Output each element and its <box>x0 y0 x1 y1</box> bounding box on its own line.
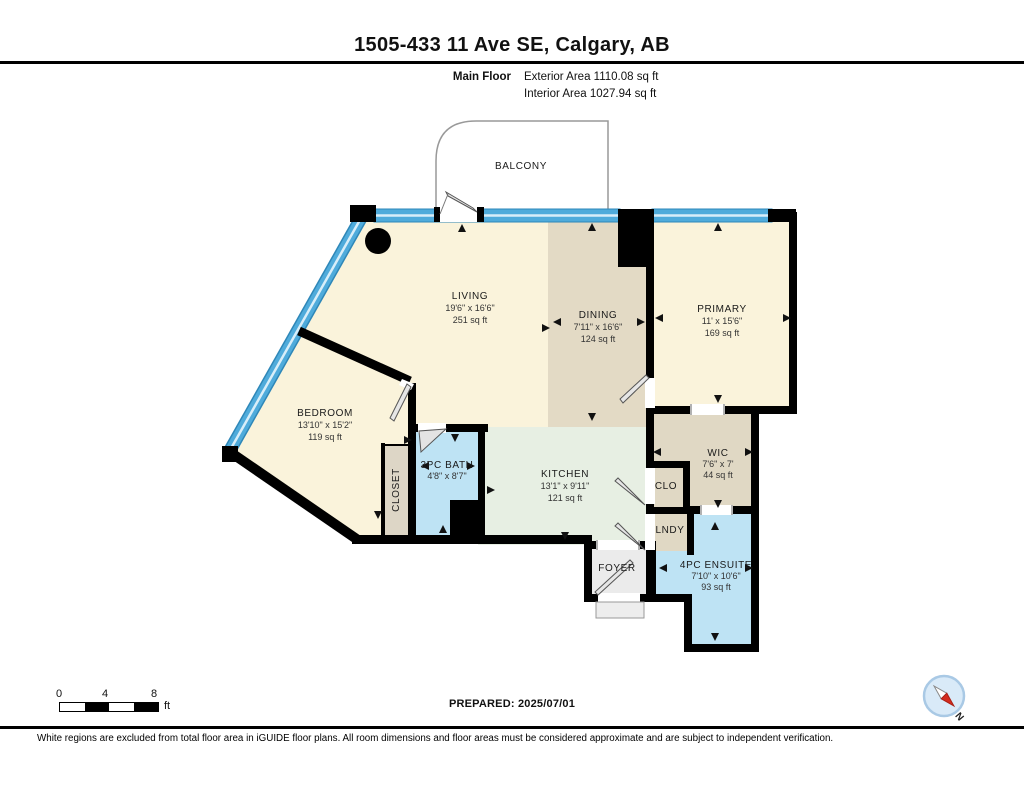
svg-text:CLOSET: CLOSET <box>391 468 402 512</box>
svg-text:13'1" x 9'11": 13'1" x 9'11" <box>541 481 590 491</box>
compass-icon: N <box>920 673 972 725</box>
svg-text:DINING: DINING <box>579 310 618 321</box>
svg-text:93 sq ft: 93 sq ft <box>701 582 731 592</box>
svg-text:7'10" x 10'6": 7'10" x 10'6" <box>691 571 740 581</box>
floor-plan-drawing: BALCONY LIVING 19'6" x 16'6" 251 sq ft D… <box>0 0 1024 791</box>
svg-text:19'6" x 16'6": 19'6" x 16'6" <box>445 303 494 313</box>
svg-text:KITCHEN: KITCHEN <box>541 469 589 480</box>
room-label-closet: CLOSET <box>391 468 402 512</box>
room-label-bath: 3PC BATH 4'8" x 8'7" <box>421 460 474 481</box>
room-label-clo: CLO <box>655 481 677 492</box>
room-label-foyer: FOYER <box>598 563 635 574</box>
svg-text:BALCONY: BALCONY <box>495 161 547 172</box>
svg-text:124 sq ft: 124 sq ft <box>581 334 616 344</box>
svg-text:7'11" x 16'6": 7'11" x 16'6" <box>574 322 623 332</box>
room-label-kitchen: KITCHEN 13'1" x 9'11" 121 sq ft <box>541 469 590 503</box>
svg-text:PRIMARY: PRIMARY <box>697 304 747 315</box>
svg-text:121 sq ft: 121 sq ft <box>548 493 583 503</box>
svg-text:7'6" x 7': 7'6" x 7' <box>702 459 733 469</box>
svg-text:FOYER: FOYER <box>598 563 635 574</box>
svg-text:44 sq ft: 44 sq ft <box>703 470 733 480</box>
svg-text:4PC ENSUITE: 4PC ENSUITE <box>680 560 752 571</box>
column <box>365 228 391 254</box>
room-label-lndy: LNDY <box>655 525 684 536</box>
svg-text:169 sq ft: 169 sq ft <box>705 328 740 338</box>
svg-text:251 sq ft: 251 sq ft <box>453 315 488 325</box>
room-label-balcony: BALCONY <box>495 161 547 172</box>
svg-text:4'8" x 8'7": 4'8" x 8'7" <box>427 471 466 481</box>
svg-text:LIVING: LIVING <box>452 291 488 302</box>
svg-text:BEDROOM: BEDROOM <box>297 408 353 419</box>
svg-text:LNDY: LNDY <box>655 525 684 536</box>
footer-divider <box>0 726 1024 729</box>
svg-text:11' x 15'6": 11' x 15'6" <box>702 316 743 326</box>
svg-text:WIC: WIC <box>707 448 728 459</box>
svg-text:3PC BATH: 3PC BATH <box>421 460 474 471</box>
entry-stoop <box>596 602 644 618</box>
svg-text:13'10" x 15'2": 13'10" x 15'2" <box>298 420 352 430</box>
svg-text:119 sq ft: 119 sq ft <box>308 432 342 442</box>
disclaimer-text: White regions are excluded from total fl… <box>37 733 997 744</box>
floor-plan-page: 1505-433 11 Ave SE, Calgary, AB Main Flo… <box>0 0 1024 791</box>
room-label-dining: DINING 7'11" x 16'6" 124 sq ft <box>574 310 623 344</box>
prepared-date: PREPARED: 2025/07/01 <box>0 698 1024 710</box>
svg-text:CLO: CLO <box>655 481 677 492</box>
